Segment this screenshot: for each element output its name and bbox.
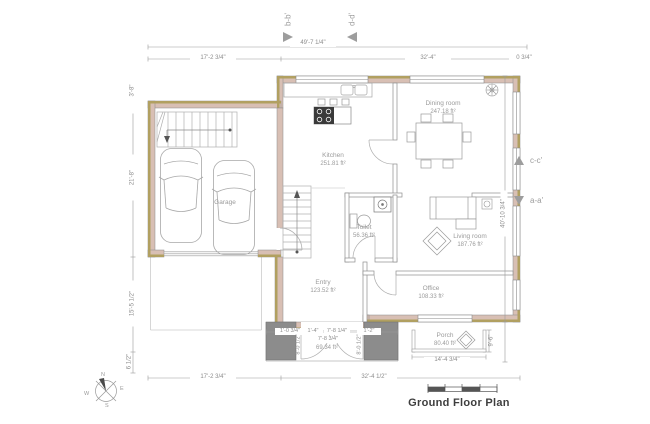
dining-table-set[interactable]	[407, 114, 471, 168]
dim-bottom-left: 17'-2 3/4"	[190, 374, 236, 381]
room-area: 56.36 ft²	[334, 232, 394, 241]
kitchen-counter[interactable]	[284, 83, 372, 97]
dim-entry-c: 7'-8 1/4"	[324, 328, 350, 335]
dim-porch-width: 14'-4 3/4"	[424, 357, 470, 364]
kitchen-island-stove[interactable]	[314, 107, 351, 124]
room-name: Office	[391, 284, 471, 293]
compass-s: S	[105, 403, 109, 409]
room-area: 80.40 ft²	[415, 340, 475, 349]
car-2[interactable]	[212, 161, 256, 255]
kitchen-stools[interactable]	[318, 99, 349, 105]
garage-door-gap	[277, 228, 284, 250]
dim-door-right: 8'-0 1/2"	[357, 325, 364, 365]
room-label-stoop-area: 69.34 ft²	[302, 344, 352, 353]
dim-top-right: 0 3/4"	[509, 55, 539, 62]
sofa[interactable]	[430, 197, 476, 229]
side-table-lamp[interactable]	[482, 199, 492, 209]
room-area: 123.52 ft²	[283, 287, 363, 296]
room-area: 247.18 ft²	[403, 108, 483, 117]
dim-left-low: 15'-5 1/2"	[130, 281, 137, 327]
section-marker-c[interactable]: c-c'	[530, 156, 560, 165]
scale-bar	[428, 384, 497, 393]
dim-door-left: 8'-0 1/2"	[296, 325, 303, 365]
dim-top-total: 49'-7 1/4"	[290, 40, 336, 47]
entry-stair-arrow-head	[294, 190, 300, 198]
dim-left-top: 3'-8"	[130, 68, 137, 114]
room-label-toilet[interactable]: Toilet 56.36 ft²	[334, 223, 394, 241]
page-title: Ground Floor Plan	[379, 397, 539, 409]
washing-machine[interactable]	[374, 197, 391, 212]
room-area: 251.81 ft²	[293, 160, 373, 169]
floor-plan-drawing	[0, 0, 650, 424]
room-label-office[interactable]: Office 108.33 ft²	[391, 284, 471, 302]
dim-top-mid: 32'-4"	[405, 55, 451, 62]
garage-door[interactable]	[164, 252, 258, 256]
stair-arrow-start	[229, 129, 232, 132]
room-label-living[interactable]: Living room 187.76 ft²	[430, 232, 510, 250]
section-marker-a[interactable]: a-a'	[530, 196, 560, 205]
compass-icon	[96, 378, 117, 402]
section-marker-b[interactable]: b-b'	[284, 0, 293, 40]
room-area: 69.34 ft²	[302, 344, 352, 353]
entry-staircase[interactable]	[283, 186, 345, 258]
dim-porch-height: 9'-6"	[489, 318, 496, 364]
floor-plan-canvas[interactable]: Kitchen 251.81 ft² Dining room 247.18 ft…	[0, 0, 650, 424]
compass-n: N	[101, 372, 105, 378]
room-label-porch[interactable]: Porch 80.40 ft²	[415, 331, 475, 349]
garage-staircase[interactable]	[157, 112, 237, 147]
dim-bottom-mid: 32'-4 1/2"	[351, 374, 397, 381]
driveway-outline	[151, 257, 262, 330]
compass-e: E	[120, 386, 124, 392]
room-label-kitchen[interactable]: Kitchen 251.81 ft²	[293, 151, 373, 169]
compass-w: W	[84, 391, 89, 397]
room-label-garage[interactable]: Garage	[195, 198, 255, 207]
dim-top-left: 17'-2 3/4"	[190, 55, 236, 62]
room-area: 108.33 ft²	[391, 293, 471, 302]
room-name: Dining room	[403, 99, 483, 108]
section-marker-d[interactable]: d-d'	[348, 0, 357, 40]
room-area: 187.76 ft²	[430, 241, 510, 250]
room-name: Porch	[415, 331, 475, 340]
dim-entry-e: 7'-8 3/4"	[313, 336, 343, 343]
room-name: Living room	[430, 232, 510, 241]
room-name: Kitchen	[293, 151, 373, 160]
room-label-entry[interactable]: Entry 123.52 ft²	[283, 278, 363, 296]
car-1[interactable]	[159, 149, 203, 243]
room-label-dining[interactable]: Dining room 247.18 ft²	[403, 99, 483, 117]
entry-stair-arrow-start	[296, 251, 299, 254]
dim-left-bottom: 6 1/2"	[127, 339, 134, 385]
dim-right-total: 40'-10 3/4"	[501, 191, 508, 237]
dim-left-mid: 21'-8"	[130, 155, 137, 201]
stair-arrow-head	[164, 136, 170, 143]
dim-entry-b: 1'-4"	[303, 328, 323, 335]
room-name: Entry	[283, 278, 363, 287]
room-name: Garage	[195, 198, 255, 207]
room-name: Toilet	[334, 223, 394, 232]
plant-icon[interactable]	[486, 84, 498, 96]
